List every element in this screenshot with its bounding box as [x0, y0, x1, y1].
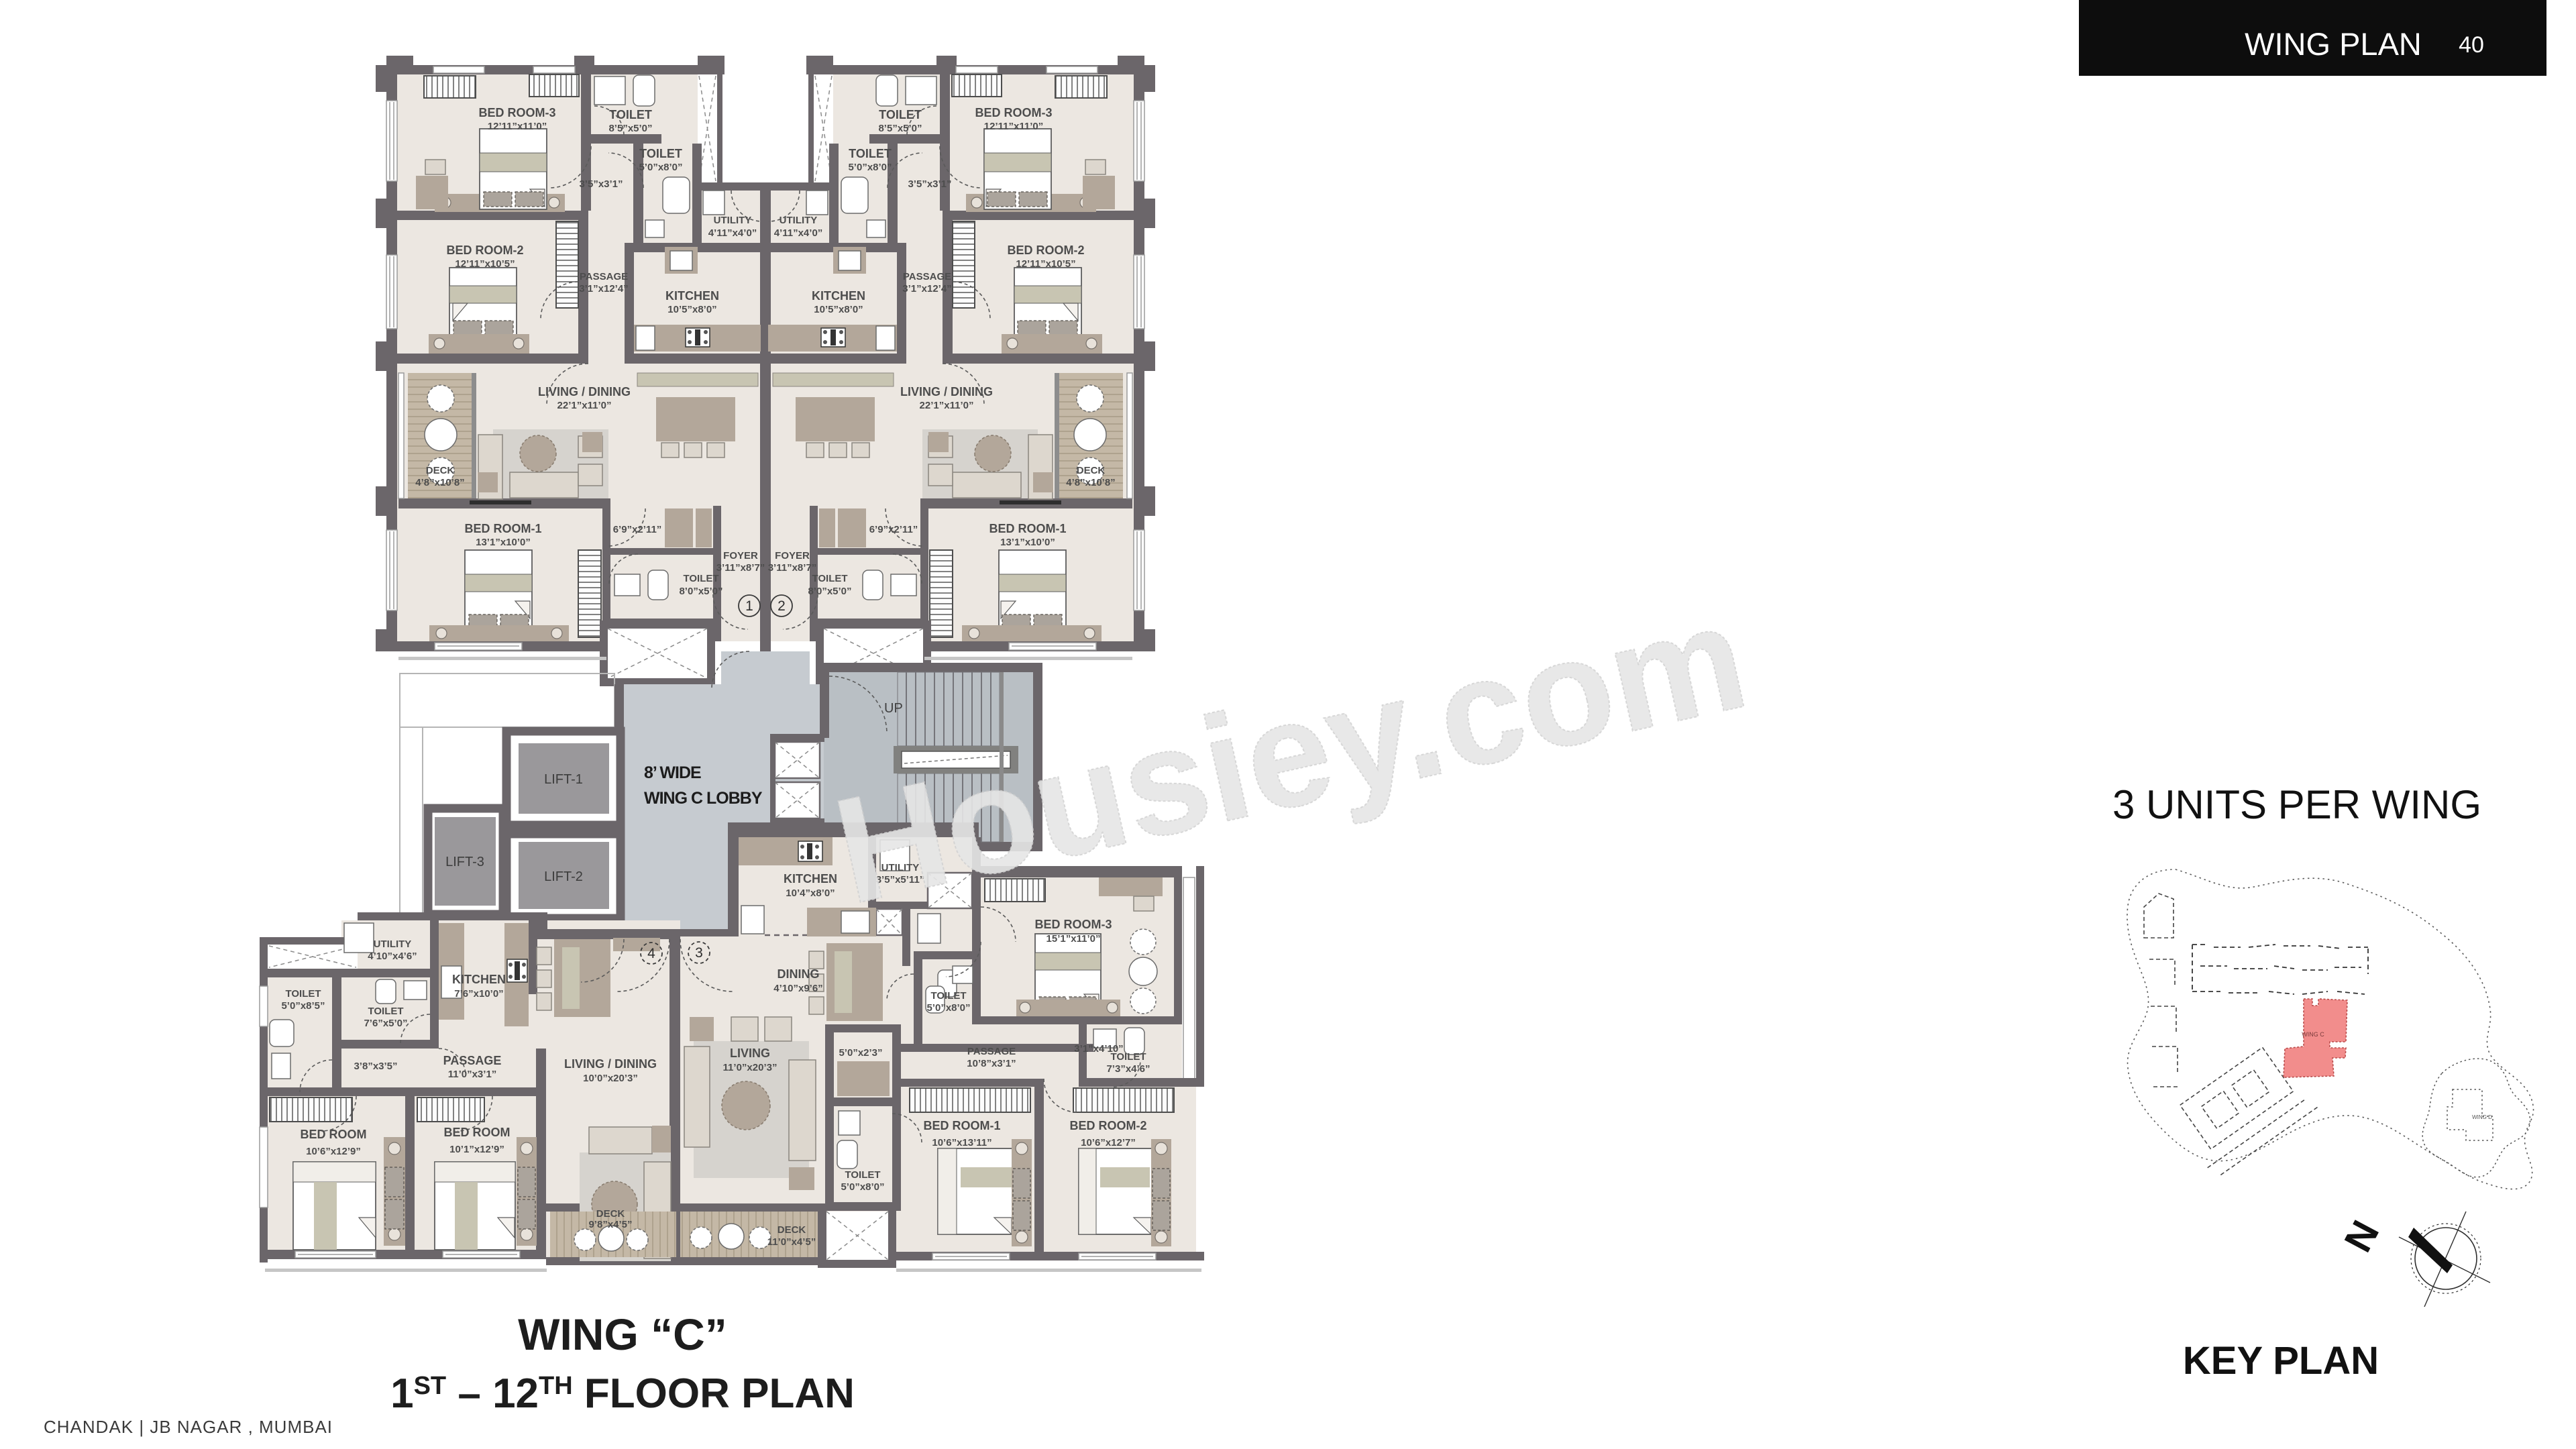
svg-text:TOILET: TOILET [879, 108, 922, 121]
svg-text:TOILET: TOILET [639, 147, 682, 160]
svg-text:PASSAGE: PASSAGE [967, 1046, 1016, 1057]
svg-text:10’6”x12’7”: 10’6”x12’7” [1081, 1137, 1136, 1148]
svg-text:4’11”x4’0”: 4’11”x4’0” [774, 227, 823, 239]
svg-text:DECK: DECK [426, 465, 455, 476]
svg-text:2: 2 [777, 598, 786, 614]
svg-text:11’0”x20’3”: 11’0”x20’3” [723, 1062, 777, 1073]
svg-text:BED ROOM-2: BED ROOM-2 [1007, 244, 1084, 257]
svg-text:BED ROOM-2: BED ROOM-2 [446, 244, 523, 257]
svg-text:KITCHEN: KITCHEN [665, 289, 719, 303]
svg-text:UTILITY: UTILITY [714, 215, 752, 226]
svg-text:UTILITY: UTILITY [374, 938, 412, 950]
svg-text:11’0”x4’5”: 11’0”x4’5” [767, 1236, 816, 1248]
svg-text:10’5”x8’0”: 10’5”x8’0” [814, 304, 863, 315]
svg-text:BED ROOM-3: BED ROOM-3 [1034, 918, 1112, 931]
svg-text:6’9”x2’11”: 6’9”x2’11” [613, 524, 662, 535]
svg-text:10’8”x3’1”: 10’8”x3’1” [967, 1058, 1016, 1069]
svg-text:8’0”x5’0”: 8’0”x5’0” [808, 586, 851, 597]
svg-text:3’1”x12’4”: 3’1”x12’4” [579, 283, 628, 294]
svg-text:BED ROOM-1: BED ROOM-1 [989, 522, 1066, 535]
svg-text:LIVING: LIVING [730, 1046, 770, 1060]
svg-text:LIFT-2: LIFT-2 [544, 869, 583, 884]
svg-text:BED ROOM-2: BED ROOM-2 [1069, 1119, 1146, 1132]
svg-text:CHANDAK | JB NAGAR , MUMBAI: CHANDAK | JB NAGAR , MUMBAI [44, 1417, 333, 1437]
svg-text:BED ROOM-1: BED ROOM-1 [923, 1119, 1000, 1132]
svg-text:TOILET: TOILET [609, 108, 652, 121]
svg-text:DECK: DECK [596, 1208, 625, 1220]
svg-text:13’1”x10’0”: 13’1”x10’0” [476, 537, 531, 548]
svg-text:3’11”x8’7”: 3’11”x8’7” [716, 562, 765, 574]
svg-text:FOYER: FOYER [775, 550, 810, 561]
svg-text:LIVING / DINING: LIVING / DINING [564, 1057, 657, 1071]
svg-text:KEY PLAN: KEY PLAN [2183, 1339, 2379, 1383]
svg-text:TOILET: TOILET [845, 1169, 880, 1181]
svg-text:DECK: DECK [1077, 465, 1106, 476]
svg-text:8’0”x5’0”: 8’0”x5’0” [679, 586, 722, 597]
svg-text:10’6”x13’11”: 10’6”x13’11” [932, 1137, 991, 1148]
svg-text:WING D: WING D [2472, 1114, 2492, 1120]
svg-text:10’1”x12’9”: 10’1”x12’9” [449, 1144, 504, 1155]
svg-text:3 UNITS PER WING: 3 UNITS PER WING [2112, 782, 2481, 827]
svg-text:3’5”x3’1”: 3’5”x3’1” [908, 178, 951, 190]
svg-text:TOILET: TOILET [368, 1006, 403, 1017]
svg-text:DINING: DINING [777, 967, 820, 981]
svg-text:5’0”x8’0”: 5’0”x8’0” [841, 1181, 884, 1193]
svg-text:DECK: DECK [777, 1224, 806, 1236]
svg-text:BED ROOM-3: BED ROOM-3 [975, 106, 1052, 119]
svg-text:10’6”x12’9”: 10’6”x12’9” [306, 1146, 361, 1157]
svg-text:LIVING / DINING: LIVING / DINING [900, 385, 993, 398]
svg-text:22’1”x11’0”: 22’1”x11’0” [920, 400, 974, 411]
svg-text:BED ROOM: BED ROOM [444, 1126, 511, 1139]
svg-text:4’10”x9’6”: 4’10”x9’6” [773, 983, 822, 994]
svg-text:5’0”x8’0”: 5’0”x8’0” [848, 162, 892, 173]
svg-text:12’11”x10’5”: 12’11”x10’5” [455, 258, 515, 270]
svg-text:WING PLAN: WING PLAN [2245, 26, 2422, 62]
svg-text:LIFT-3: LIFT-3 [445, 855, 484, 869]
svg-text:12’11”x11’0”: 12’11”x11’0” [984, 121, 1043, 132]
svg-text:4’11”x4’0”: 4’11”x4’0” [708, 227, 757, 239]
svg-text:7’6”x5’0”: 7’6”x5’0” [364, 1018, 407, 1029]
svg-text:PASSAGE: PASSAGE [443, 1054, 502, 1067]
svg-text:4’8”x10’8”: 4’8”x10’8” [1066, 477, 1115, 488]
svg-text:TOILET: TOILET [683, 573, 718, 584]
svg-text:KITCHEN: KITCHEN [452, 973, 506, 986]
svg-text:9’8”x4’5”: 9’8”x4’5” [588, 1219, 632, 1230]
svg-text:3: 3 [695, 945, 703, 961]
svg-text:15’1”x11’0”: 15’1”x11’0” [1046, 933, 1101, 945]
svg-text:3’5”x3’1”: 3’5”x3’1” [579, 178, 623, 190]
svg-text:40: 40 [2459, 32, 2484, 58]
svg-text:7’6”x10’0”: 7’6”x10’0” [454, 988, 503, 1000]
svg-text:6’9”x2’11”: 6’9”x2’11” [869, 524, 918, 535]
svg-text:3’1”x12’4”: 3’1”x12’4” [902, 283, 951, 294]
svg-text:8’5”x5’0”: 8’5”x5’0” [608, 123, 652, 134]
svg-text:22’1”x11’0”: 22’1”x11’0” [557, 400, 612, 411]
svg-text:5’0”x2’3”: 5’0”x2’3” [839, 1047, 882, 1059]
svg-text:TOILET: TOILET [849, 147, 892, 160]
svg-text:BED ROOM-3: BED ROOM-3 [478, 106, 555, 119]
svg-text:KITCHEN: KITCHEN [812, 289, 865, 303]
svg-text:TOILET: TOILET [930, 990, 966, 1002]
svg-text:TOILET: TOILET [812, 573, 847, 584]
svg-text:FOYER: FOYER [723, 550, 758, 561]
svg-text:WING C LOBBY: WING C LOBBY [644, 789, 763, 808]
svg-text:5’0”x8’0”: 5’0”x8’0” [639, 162, 682, 173]
svg-text:WING “C”: WING “C” [518, 1309, 727, 1359]
svg-text:5’0”x8’5”: 5’0”x8’5” [281, 1000, 325, 1012]
svg-text:4: 4 [647, 946, 655, 961]
svg-text:11’0”x3’1”: 11’0”x3’1” [448, 1069, 497, 1080]
svg-text:5’0”x8’0”: 5’0”x8’0” [926, 1002, 970, 1014]
svg-text:12’11”x11’0”: 12’11”x11’0” [488, 121, 547, 132]
svg-text:UP: UP [884, 701, 903, 716]
svg-text:BED ROOM-1: BED ROOM-1 [464, 522, 541, 535]
svg-text:1ST – 12TH FLOOR PLAN: 1ST – 12TH FLOOR PLAN [390, 1371, 855, 1417]
svg-text:10’4”x8’0”: 10’4”x8’0” [786, 888, 835, 899]
svg-text:8’5”x5’0”: 8’5”x5’0” [878, 123, 922, 134]
svg-text:10’0”x20’3”: 10’0”x20’3” [583, 1073, 638, 1084]
svg-text:WING C: WING C [2302, 1031, 2324, 1038]
svg-text:4’8”x10’8”: 4’8”x10’8” [415, 477, 464, 488]
svg-text:LIFT-1: LIFT-1 [544, 772, 583, 787]
svg-text:TOILET: TOILET [1110, 1051, 1146, 1063]
svg-text:3’8”x3’5”: 3’8”x3’5” [354, 1061, 397, 1072]
svg-text:UTILITY: UTILITY [780, 215, 818, 226]
svg-text:LIVING / DINING: LIVING / DINING [538, 385, 631, 398]
svg-text:BED ROOM: BED ROOM [301, 1128, 367, 1141]
svg-text:PASSAGE: PASSAGE [580, 271, 628, 282]
svg-text:12’11”x10’5”: 12’11”x10’5” [1016, 258, 1075, 270]
svg-text:KITCHEN: KITCHEN [784, 872, 837, 885]
svg-text:TOILET: TOILET [285, 988, 321, 1000]
svg-text:1: 1 [745, 598, 753, 614]
svg-text:7’3”x4’6”: 7’3”x4’6” [1106, 1063, 1150, 1075]
svg-text:3’11”x8’7”: 3’11”x8’7” [768, 562, 817, 574]
svg-text:10’5”x8’0”: 10’5”x8’0” [667, 304, 716, 315]
svg-text:8’ WIDE: 8’ WIDE [644, 763, 701, 782]
svg-text:13’1”x10’0”: 13’1”x10’0” [1000, 537, 1055, 548]
svg-text:4’10”x4’6”: 4’10”x4’6” [368, 951, 417, 962]
svg-text:PASSAGE: PASSAGE [903, 271, 951, 282]
